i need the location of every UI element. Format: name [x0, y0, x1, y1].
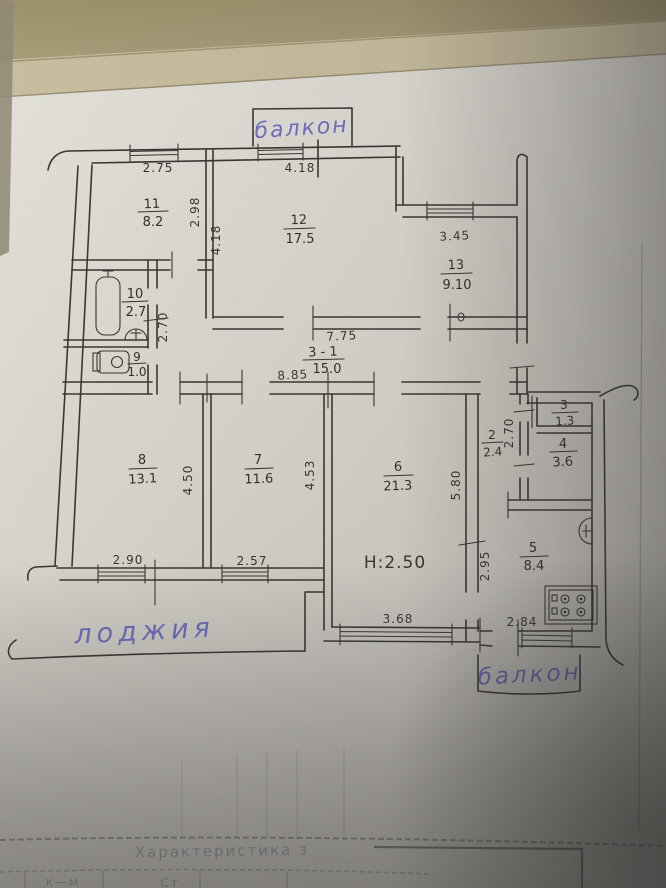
room10-number: 10 [127, 287, 144, 302]
dim-room11-width: 2.75 [143, 161, 174, 175]
room11-area: 8.2 [143, 215, 164, 230]
room7-area: 11.6 [244, 472, 273, 488]
balcony-bottom-label: балкон [477, 659, 582, 690]
room2-number: 2 [488, 428, 496, 442]
dim-room12-width: 4.18 [285, 161, 316, 175]
room13-number: 13 [447, 258, 464, 274]
room4-number: 4 [559, 437, 567, 452]
room12-area: 17.5 [286, 232, 315, 247]
room6-number: 6 [394, 460, 402, 475]
dim-corridor-upper: 7.75 [326, 328, 357, 344]
room4-area: 3.6 [552, 454, 573, 470]
room13-area: 9.10 [443, 278, 472, 293]
dim-corridor-lower: 8.85 [277, 367, 308, 383]
room10-area: 2.7 [126, 305, 147, 320]
corridor-area: 15.0 [313, 362, 342, 377]
room8-number: 8 [138, 453, 146, 468]
footer-cell-b: Ст [160, 876, 179, 888]
room6-area: 21.3 [383, 479, 412, 495]
dim-room7-depth: 4.53 [303, 460, 317, 491]
dim-room11-depth: 2.98 [188, 197, 202, 228]
room5-area: 8.4 [524, 559, 545, 574]
room7-number: 7 [254, 453, 262, 468]
room2-area: 2.4 [483, 444, 503, 459]
dim-kitchen-window: 2.84 [507, 615, 538, 629]
room3-number: 3 [560, 398, 568, 412]
footer-cell-a: к—м [46, 875, 80, 888]
dim-room8-window: 2.90 [113, 553, 144, 567]
room11-number: 11 [143, 197, 160, 213]
dim-room6-depth: 5.80 [449, 470, 463, 501]
room8-area: 13.1 [128, 471, 158, 487]
corridor-number: 3 - 1 [308, 344, 338, 360]
dim-kitchen-depth: 2.95 [478, 551, 492, 582]
room3-area: 1.3 [555, 413, 575, 428]
dim-room8-depth: 4.50 [181, 465, 195, 496]
room9-number: 9 [133, 350, 141, 364]
room9-area: 1.0 [127, 365, 146, 379]
ceiling-height-note: H:2.50 [364, 553, 426, 573]
footer-stamp-text: Характеристика з [135, 840, 310, 861]
dim-bath-depth: 2.70 [156, 312, 170, 343]
room5-number: 5 [529, 541, 537, 556]
room12-number: 12 [290, 213, 307, 229]
dim-room13-width: 3.45 [439, 228, 470, 244]
dim-room12-depth: 4.18 [209, 225, 223, 256]
floor-plan-photo: Характеристика з к—м Ст [0, 0, 666, 888]
dim-room6-window: 3.68 [383, 612, 414, 626]
dim-room7-window: 2.57 [237, 554, 268, 568]
dim-hall2-depth: 2.70 [502, 418, 516, 449]
